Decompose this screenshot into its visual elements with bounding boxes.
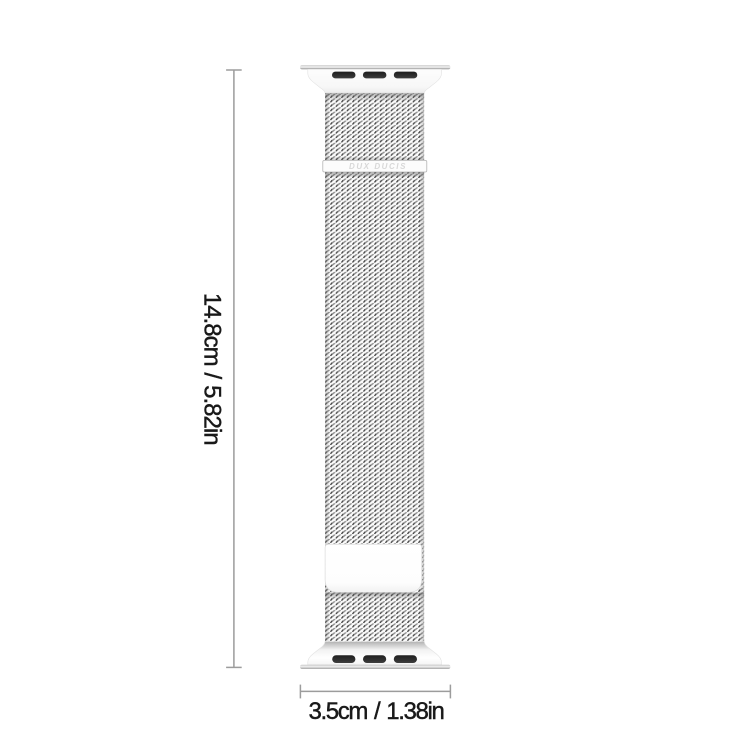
svg-text:3.5cm / 1.38in: 3.5cm / 1.38in [308,698,443,725]
svg-text:DUX DUCIS: DUX DUCIS [349,162,407,171]
svg-text:14.8cm / 5.82in: 14.8cm / 5.82in [199,293,226,445]
